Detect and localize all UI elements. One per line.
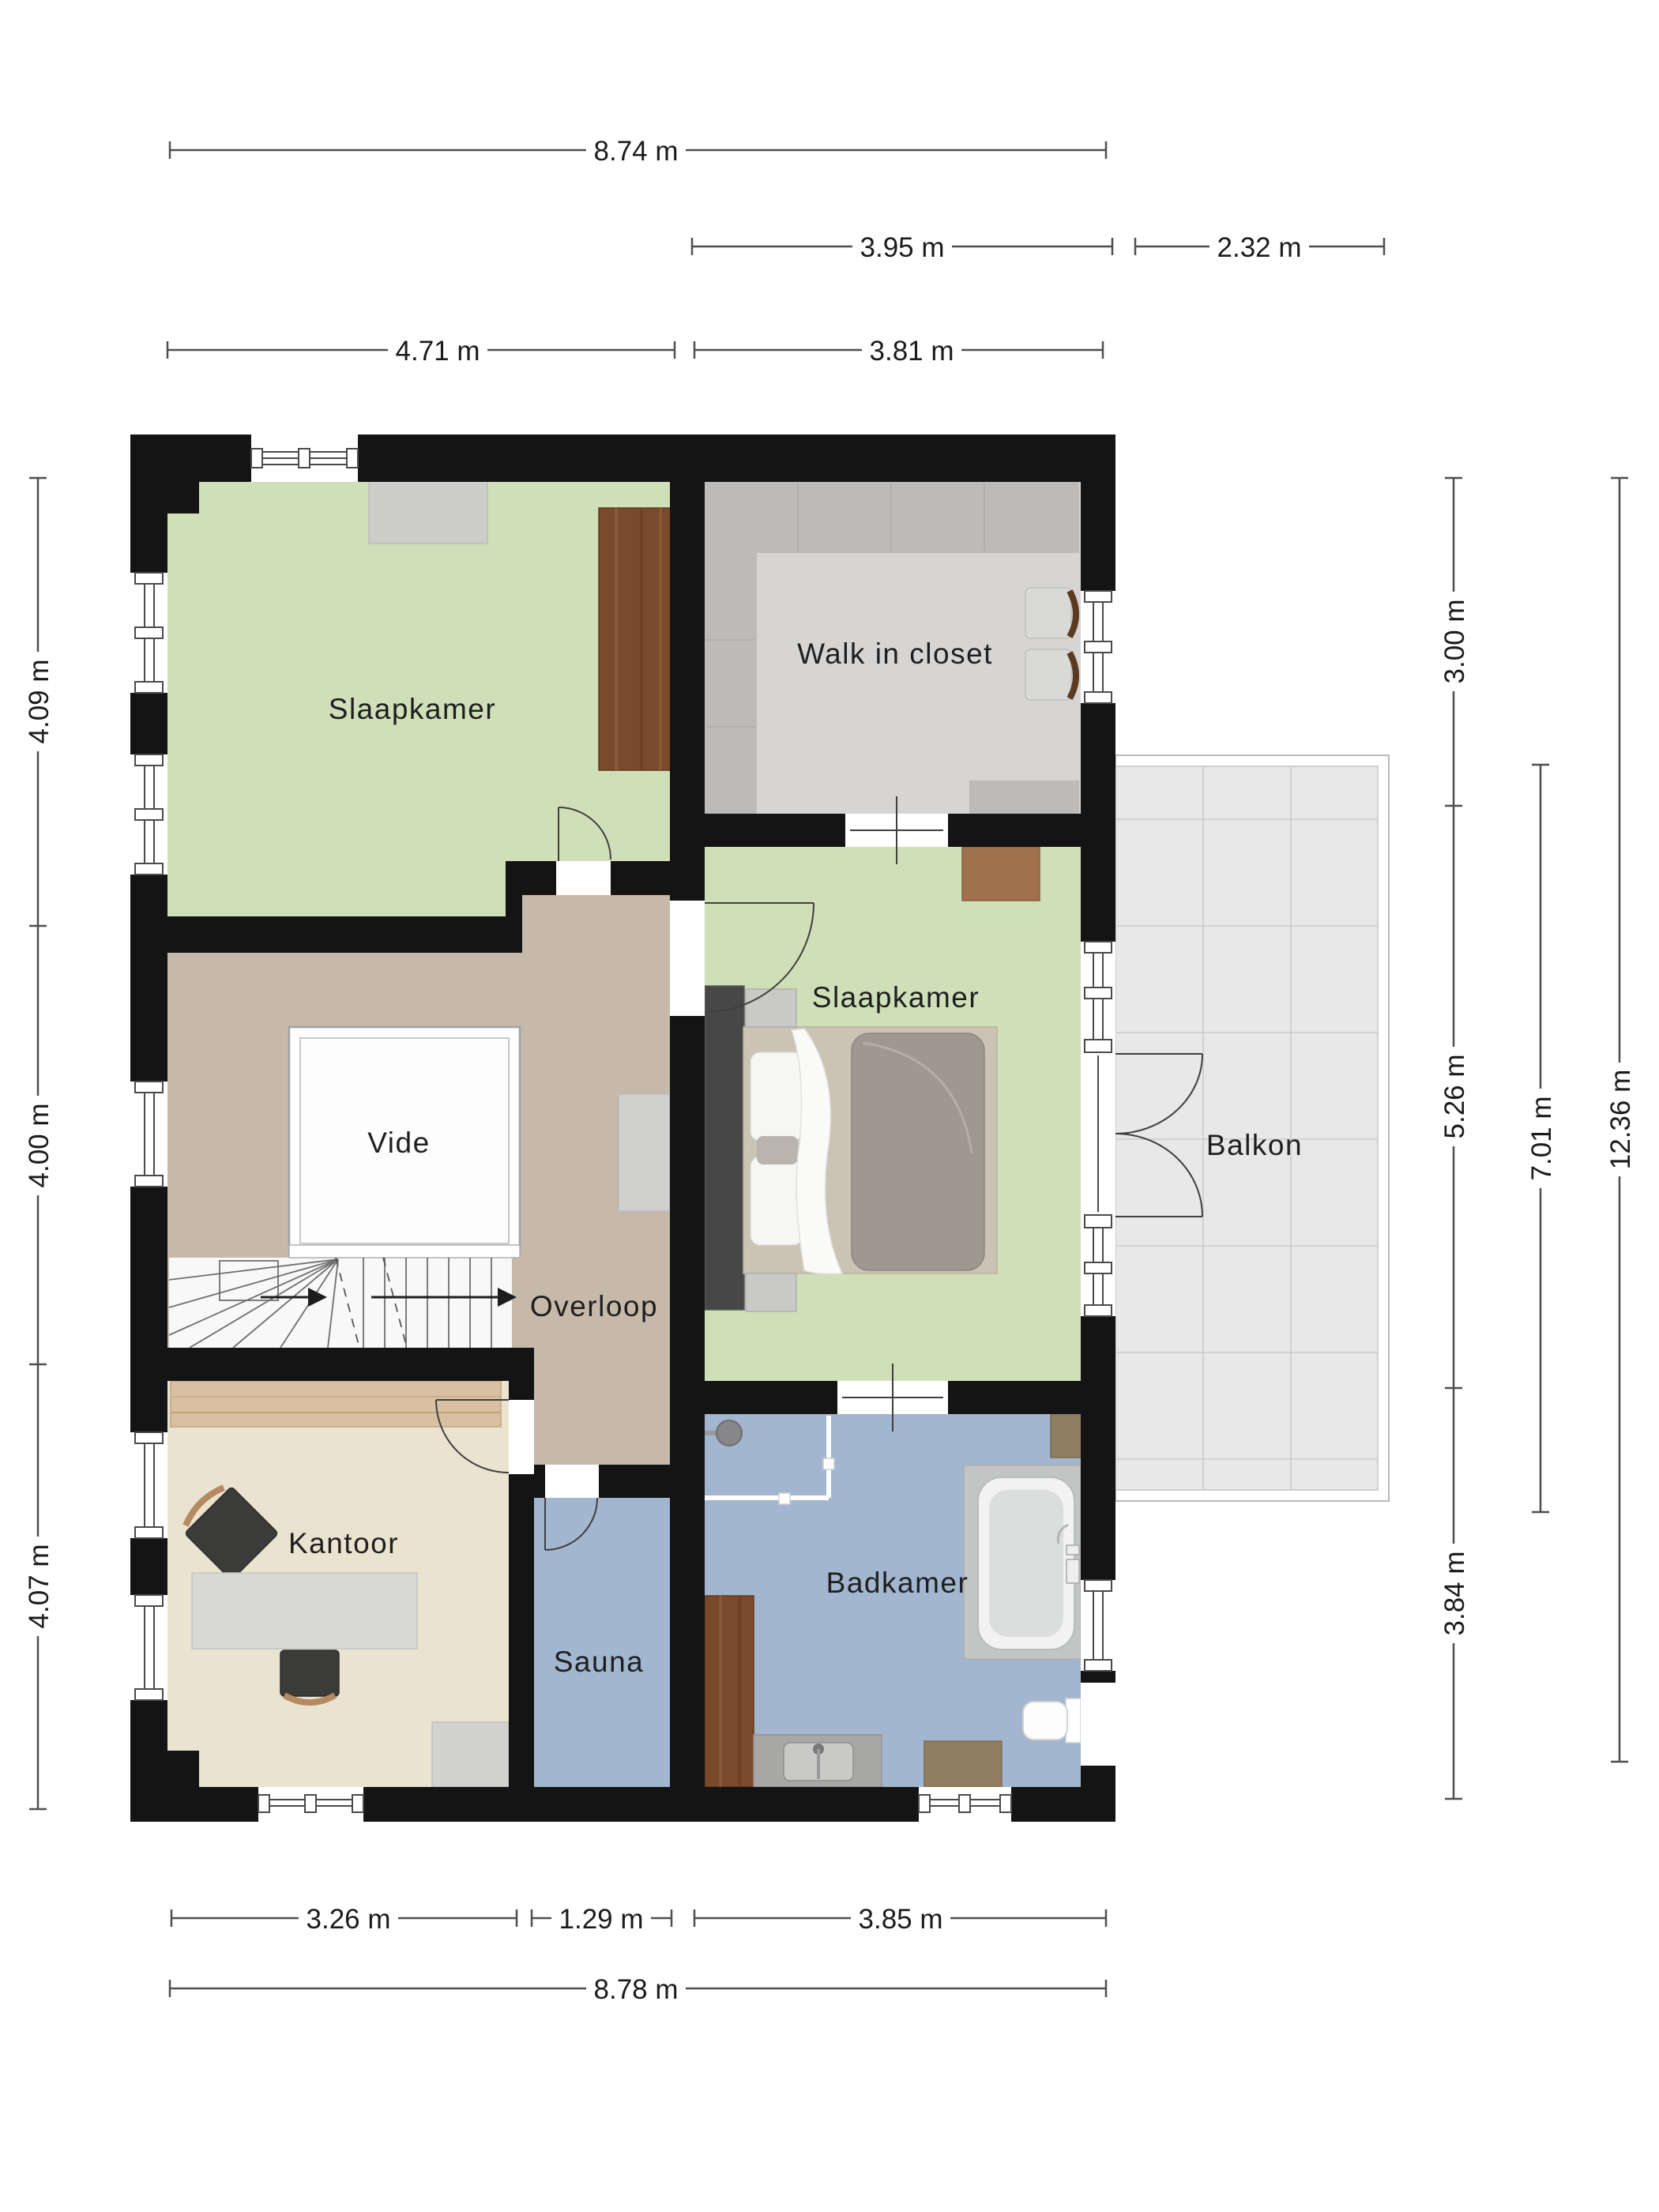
nightstand-bottom xyxy=(746,1273,796,1311)
wall-bedroom1-door-left xyxy=(522,861,556,895)
svg-text:7.01 m: 7.01 m xyxy=(1526,1097,1557,1181)
vide-label: Vide xyxy=(367,1127,430,1159)
wardrobe-left xyxy=(705,553,757,815)
window-top xyxy=(251,434,358,482)
vanity-sink xyxy=(754,1735,882,1787)
dim-overall-height: 12.36 m xyxy=(1602,478,1637,1762)
staircase xyxy=(169,1245,520,1348)
pillow-1 xyxy=(750,1052,803,1141)
window-bottom-2 xyxy=(919,1787,1011,1822)
headboard-panel xyxy=(705,986,744,1310)
wardrobe-top xyxy=(705,482,1079,553)
window-left-2 xyxy=(130,754,167,875)
bedroom1-floor-lower xyxy=(167,861,506,918)
svg-text:8.78 m: 8.78 m xyxy=(594,1974,679,2005)
svg-text:4.71 m: 4.71 m xyxy=(396,336,480,367)
balcony-floor xyxy=(1115,766,1378,1490)
svg-text:3.84 m: 3.84 m xyxy=(1439,1552,1470,1636)
wall-closet-bottom-right xyxy=(948,814,1081,847)
closet-chair-2 xyxy=(1025,649,1076,700)
window-closet-right xyxy=(1081,591,1115,703)
wardrobe-bottom-right xyxy=(969,781,1079,815)
overloop-cabinet xyxy=(619,1094,670,1211)
balcony xyxy=(1115,755,1389,1501)
dim-right-heights: 3.00 m 5.26 m 3.84 m xyxy=(1436,478,1471,1799)
wall-jog xyxy=(506,861,522,953)
svg-text:2.32 m: 2.32 m xyxy=(1217,232,1302,263)
svg-text:3.00 m: 3.00 m xyxy=(1439,600,1470,684)
shower-head-icon xyxy=(717,1420,742,1446)
wall-sauna-top-b xyxy=(599,1465,670,1498)
wall-center-lower xyxy=(670,1016,705,1787)
wall-badkamer-top-left xyxy=(705,1381,837,1414)
bedroom1-label: Slaapkamer xyxy=(329,693,496,725)
badkamer-label: Badkamer xyxy=(826,1567,969,1599)
dim-balcony-width: 2.32 m xyxy=(1135,229,1384,264)
sauna-label: Sauna xyxy=(554,1646,645,1678)
svg-text:3.81 m: 3.81 m xyxy=(870,336,954,367)
desk-wood xyxy=(962,847,1040,901)
bathtub xyxy=(964,1465,1081,1659)
nightstand-top xyxy=(746,989,796,1027)
closet-chair-1 xyxy=(1025,588,1076,638)
toilet xyxy=(1023,1698,1081,1743)
dim-left-section: 4.71 m xyxy=(167,333,675,367)
window-left-5 xyxy=(130,1595,167,1700)
office-chair-2 xyxy=(280,1650,339,1702)
svg-text:4.09 m: 4.09 m xyxy=(24,660,55,744)
overloop-label: Overloop xyxy=(530,1290,658,1322)
wall-notch-topleft xyxy=(167,482,199,513)
sauna-floor xyxy=(531,1498,670,1787)
svg-text:4.07 m: 4.07 m xyxy=(24,1544,55,1629)
window-left-3 xyxy=(130,1082,167,1187)
balkon-label: Balkon xyxy=(1206,1129,1303,1161)
bath-mat xyxy=(924,1741,1002,1787)
kantoor-label: Kantoor xyxy=(288,1527,399,1559)
door-badkamer-right xyxy=(1081,1683,1115,1766)
dim-left-heights: 4.09 m 4.00 m 4.07 m xyxy=(21,478,55,1809)
wall-notch-bottomleft xyxy=(167,1751,199,1787)
duvet xyxy=(852,1033,984,1270)
stair-area xyxy=(169,1258,512,1348)
office-desk xyxy=(192,1573,417,1649)
svg-text:3.26 m: 3.26 m xyxy=(307,1904,391,1935)
svg-text:3.85 m: 3.85 m xyxy=(859,1904,943,1935)
wall-kantoor-right-b xyxy=(509,1474,534,1787)
floor-plan-canvas: Slaapkamer Walk in closet Slaapkamer Vid… xyxy=(0,0,1659,2212)
walk-in-closet-label: Walk in closet xyxy=(797,638,993,670)
kantoor-cabinet xyxy=(432,1722,509,1787)
dim-closet-width: 3.95 m xyxy=(692,229,1112,264)
wall-kantoor-right-a xyxy=(509,1381,534,1400)
dim-bottom-overall: 8.78 m xyxy=(170,1971,1106,2006)
window-bedroom2-right xyxy=(1081,942,1115,1316)
wall-center-upper xyxy=(670,482,705,901)
wall-kantoor-top xyxy=(130,1348,534,1381)
window-badkamer-right xyxy=(1081,1580,1115,1671)
pillow-small xyxy=(757,1136,798,1164)
window-bottom-1 xyxy=(258,1787,363,1822)
closet-unit xyxy=(369,480,487,544)
dim-bottom-segments: 3.26 m 1.29 m 3.85 m xyxy=(171,1901,1106,1935)
bathroom-wood-cabinet xyxy=(705,1596,754,1787)
svg-text:4.00 m: 4.00 m xyxy=(24,1104,55,1188)
dim-top-overall: 8.74 m xyxy=(170,133,1106,167)
dim-right-section: 3.81 m xyxy=(694,333,1103,367)
wall-badkamer-top-right xyxy=(948,1381,1081,1414)
bedroom2-label: Slaapkamer xyxy=(812,981,980,1014)
stair-railing xyxy=(289,1245,520,1258)
window-left-4 xyxy=(130,1432,167,1538)
svg-text:8.74 m: 8.74 m xyxy=(594,136,679,167)
svg-text:1.29 m: 1.29 m xyxy=(559,1904,644,1935)
wall-bedroom1-bottom xyxy=(130,916,522,953)
svg-text:12.36 m: 12.36 m xyxy=(1605,1070,1636,1169)
svg-text:5.26 m: 5.26 m xyxy=(1439,1055,1470,1139)
wall-closet-bottom-left xyxy=(705,814,845,847)
tub-faucet xyxy=(1066,1545,1079,1555)
dim-balcony-height: 7.01 m xyxy=(1523,765,1558,1512)
pillow-2 xyxy=(750,1157,803,1245)
wall-bedroom1-door-right xyxy=(611,861,670,895)
window-left-1 xyxy=(130,573,167,693)
svg-text:3.95 m: 3.95 m xyxy=(860,232,945,263)
